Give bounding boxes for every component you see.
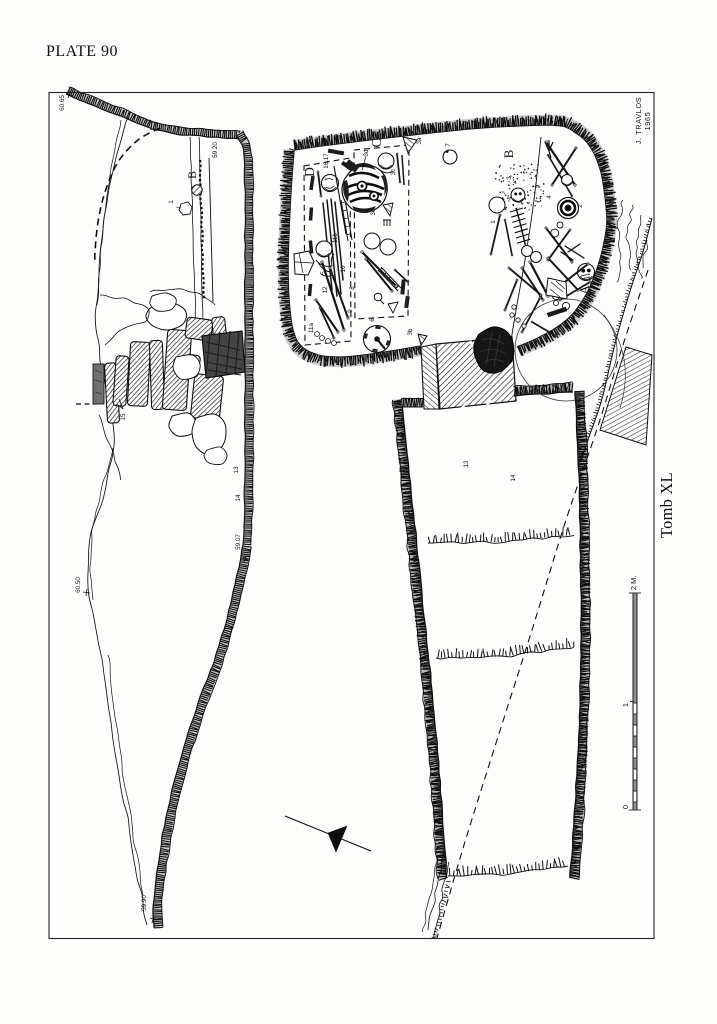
svg-text:3d: 3d bbox=[363, 149, 370, 156]
svg-text:14: 14 bbox=[510, 474, 517, 481]
svg-text:1965: 1965 bbox=[643, 112, 652, 131]
svg-text:6: 6 bbox=[369, 318, 376, 322]
svg-text:3b: 3b bbox=[407, 328, 414, 335]
svg-text:4: 4 bbox=[546, 195, 553, 199]
svg-text:60.50: 60.50 bbox=[75, 577, 82, 593]
svg-text:C: C bbox=[369, 138, 384, 147]
svg-text:1: 1 bbox=[490, 220, 497, 224]
svg-text:8: 8 bbox=[349, 286, 356, 290]
svg-text:D: D bbox=[302, 167, 317, 177]
svg-text:15: 15 bbox=[120, 413, 127, 421]
svg-text:11a: 11a bbox=[308, 323, 315, 333]
svg-text:2 M.: 2 M. bbox=[629, 576, 638, 591]
svg-text:B: B bbox=[501, 149, 516, 158]
svg-text:12: 12 bbox=[322, 286, 329, 293]
svg-text:13: 13 bbox=[233, 466, 240, 474]
svg-text:1: 1 bbox=[621, 703, 630, 707]
svg-text:7: 7 bbox=[445, 143, 452, 147]
svg-text:13: 13 bbox=[463, 460, 470, 467]
svg-text:59.20: 59.20 bbox=[212, 142, 219, 158]
svg-text:14: 14 bbox=[235, 494, 242, 502]
svg-text:60.65: 60.65 bbox=[59, 95, 66, 111]
svg-text:PLATE 90: PLATE 90 bbox=[46, 43, 118, 60]
svg-text:J. TRAVLOS: J. TRAVLOS bbox=[634, 97, 643, 144]
svg-text:Tomb XL: Tomb XL bbox=[657, 472, 676, 538]
svg-text:0: 0 bbox=[621, 805, 630, 809]
svg-text:59.07: 59.07 bbox=[235, 534, 242, 550]
svg-text:16,17: 16,17 bbox=[323, 153, 330, 169]
svg-text:1: 1 bbox=[168, 200, 175, 204]
svg-text:9: 9 bbox=[347, 309, 354, 313]
svg-text:59.90: 59.90 bbox=[141, 895, 148, 911]
svg-text:B: B bbox=[185, 171, 199, 179]
